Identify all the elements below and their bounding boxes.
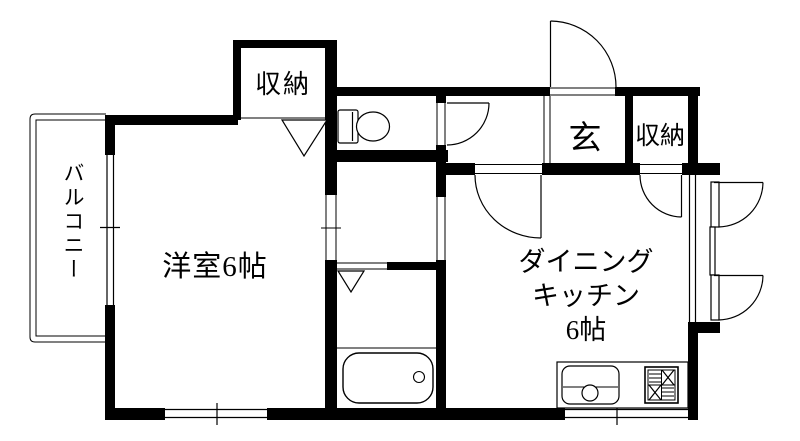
storage-door-arc — [640, 175, 682, 217]
dining-kitchen-label: ダイニング キッチン 6帖 — [489, 245, 683, 347]
kitchen-sink-icon — [562, 366, 619, 404]
window-left — [100, 155, 120, 305]
floor-plan-drawing — [0, 0, 800, 441]
floor-plan: バルコニー 洋室6帖 ダイニング キッチン 6帖 玄 収納 収納 — [0, 0, 800, 441]
toilet-icon — [338, 110, 390, 143]
casement-window-arcs — [714, 183, 763, 321]
hall-door-arc — [475, 175, 541, 238]
dining-kitchen-label-line3: 6帖 — [489, 313, 683, 347]
window-bottom-west — [165, 403, 267, 425]
storage-top-label: 収納 — [239, 64, 327, 101]
window-east — [690, 175, 720, 323]
balcony-label: バルコニー — [58, 162, 88, 352]
western-room-label: 洋室6帖 — [120, 243, 310, 285]
opening-frames — [241, 88, 682, 269]
storage-entry-label: 収納 — [629, 116, 691, 152]
dining-kitchen-label-line2: キッチン — [489, 279, 683, 313]
entry-door-arc — [551, 21, 617, 87]
bathtub-icon — [337, 348, 436, 403]
toilet-door-arc — [447, 103, 489, 145]
dining-kitchen-label-line1: ダイニング — [489, 245, 683, 279]
entrance-label: 玄 — [560, 111, 610, 159]
